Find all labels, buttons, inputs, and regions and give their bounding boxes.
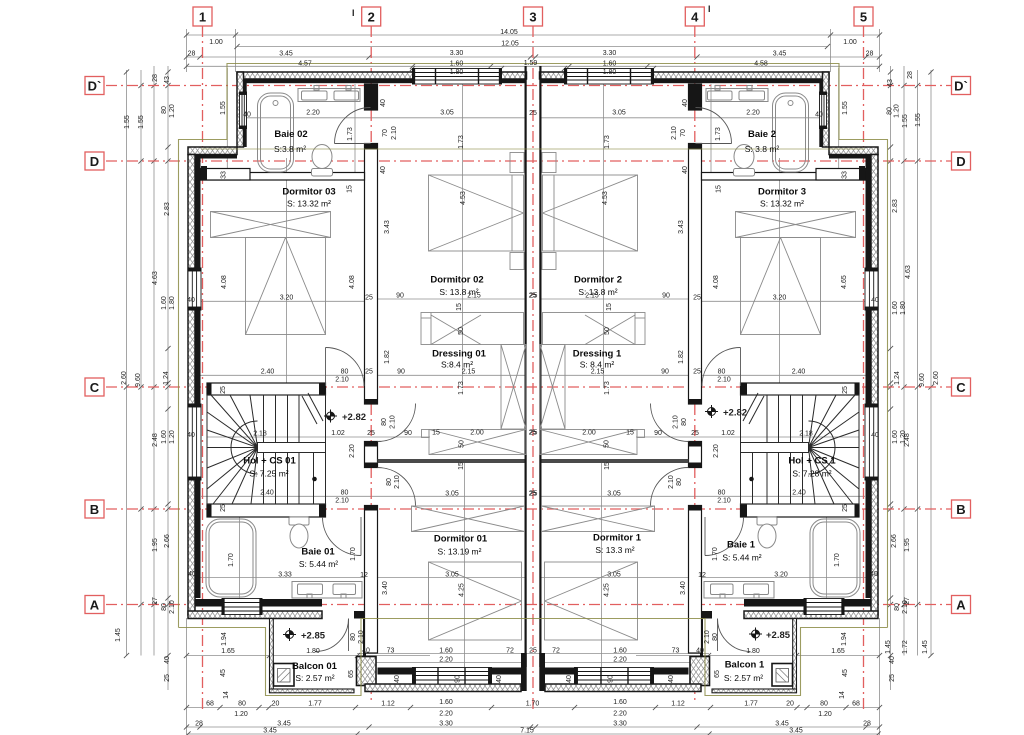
- svg-text:2.20: 2.20: [306, 110, 320, 117]
- svg-text:1.72: 1.72: [902, 640, 909, 654]
- svg-text:4.53: 4.53: [460, 191, 467, 205]
- svg-text:3.40: 3.40: [382, 581, 389, 595]
- svg-text:80: 80: [820, 701, 828, 708]
- svg-text:Baie 02: Baie 02: [274, 129, 307, 140]
- svg-text:80: 80: [718, 490, 726, 497]
- svg-text:1.60: 1.60: [161, 430, 168, 444]
- svg-text:1.70: 1.70: [350, 547, 357, 561]
- svg-text:9.60: 9.60: [919, 373, 926, 387]
- svg-text:1.45: 1.45: [885, 640, 892, 654]
- svg-text:1.24: 1.24: [894, 371, 901, 385]
- svg-text:68: 68: [852, 701, 860, 708]
- svg-text:72: 72: [506, 648, 514, 655]
- svg-text:1.73: 1.73: [604, 381, 611, 395]
- svg-text:1.60: 1.60: [613, 648, 627, 655]
- svg-text:2.15: 2.15: [467, 293, 481, 300]
- svg-text:50: 50: [458, 327, 465, 335]
- svg-text:4.25: 4.25: [459, 583, 466, 597]
- svg-text:40: 40: [871, 297, 879, 304]
- svg-text:40: 40: [188, 571, 196, 578]
- svg-text:3.20: 3.20: [774, 572, 788, 579]
- svg-text:1.12: 1.12: [671, 701, 685, 708]
- svg-text:1.94: 1.94: [841, 632, 848, 646]
- svg-text:1.80: 1.80: [746, 648, 760, 655]
- svg-text:2.10: 2.10: [717, 377, 731, 384]
- svg-text:28: 28: [907, 71, 914, 79]
- svg-text:1.80: 1.80: [450, 69, 464, 76]
- svg-text:Hol + CS 01: Hol + CS 01: [243, 456, 296, 467]
- svg-text:25: 25: [220, 504, 227, 512]
- svg-text:1.45: 1.45: [922, 640, 929, 654]
- svg-text:1.55: 1.55: [220, 101, 227, 115]
- svg-text:73: 73: [387, 648, 395, 655]
- svg-text:2.20: 2.20: [349, 444, 356, 458]
- svg-text:1.20: 1.20: [900, 430, 907, 444]
- svg-text:27: 27: [152, 597, 159, 605]
- svg-text:Dressing 01: Dressing 01: [432, 349, 487, 360]
- svg-text:Dormitor 2: Dormitor 2: [574, 275, 622, 286]
- svg-text:D: D: [90, 154, 99, 169]
- svg-text:2.10: 2.10: [394, 475, 401, 489]
- svg-text:50: 50: [459, 440, 466, 448]
- svg-text:68: 68: [206, 701, 214, 708]
- svg-text:2.40: 2.40: [792, 490, 806, 497]
- svg-text:3.45: 3.45: [263, 728, 277, 735]
- svg-text:2.10: 2.10: [668, 475, 675, 489]
- svg-text:12.05: 12.05: [501, 41, 519, 48]
- svg-text:4.08: 4.08: [713, 275, 720, 289]
- svg-text:43: 43: [887, 79, 894, 87]
- svg-text:40: 40: [696, 648, 704, 655]
- svg-text:2.20: 2.20: [439, 657, 453, 664]
- svg-text:2.20: 2.20: [713, 444, 720, 458]
- svg-text:9.60: 9.60: [135, 373, 142, 387]
- svg-text:1.60: 1.60: [613, 699, 627, 706]
- svg-text:25: 25: [529, 293, 537, 300]
- svg-text:3.05: 3.05: [445, 491, 459, 498]
- svg-text:2.20: 2.20: [439, 711, 453, 718]
- svg-text:3.43: 3.43: [678, 220, 685, 234]
- svg-text:80: 80: [341, 369, 349, 376]
- svg-text:S: 13.32 m²: S: 13.32 m²: [287, 199, 331, 209]
- svg-text:3.30: 3.30: [439, 721, 453, 728]
- svg-text:80: 80: [381, 418, 388, 426]
- svg-text:1.80: 1.80: [169, 296, 176, 310]
- svg-text:5: 5: [860, 10, 867, 25]
- svg-text:3.05: 3.05: [440, 110, 454, 117]
- svg-text:Baie 1: Baie 1: [727, 540, 756, 551]
- svg-text:4.25: 4.25: [604, 583, 611, 597]
- svg-text:80: 80: [712, 633, 719, 641]
- svg-text:2.10: 2.10: [335, 498, 349, 505]
- svg-text:80: 80: [386, 478, 393, 486]
- svg-text:12: 12: [360, 572, 368, 579]
- svg-text:2.10: 2.10: [902, 600, 909, 614]
- svg-text:1.82: 1.82: [384, 350, 391, 364]
- svg-text:90: 90: [661, 369, 669, 376]
- svg-text:4: 4: [691, 10, 699, 25]
- svg-text:1.73: 1.73: [715, 127, 722, 141]
- svg-text:40: 40: [682, 166, 689, 174]
- svg-text:1.60: 1.60: [892, 301, 899, 315]
- svg-text:40: 40: [394, 675, 401, 683]
- svg-text:15: 15: [604, 462, 611, 470]
- svg-text:1.77: 1.77: [744, 701, 758, 708]
- svg-text:Dormitor 01: Dormitor 01: [434, 534, 488, 545]
- svg-text:80: 80: [161, 106, 168, 114]
- svg-text:25: 25: [691, 430, 699, 437]
- svg-text:1.60: 1.60: [439, 699, 453, 706]
- svg-text:20: 20: [272, 701, 280, 708]
- svg-text:40: 40: [871, 432, 879, 439]
- svg-text:2.18: 2.18: [253, 431, 267, 438]
- svg-text:C: C: [956, 380, 966, 395]
- svg-text:3.45: 3.45: [279, 51, 293, 58]
- svg-text:1.55: 1.55: [124, 115, 131, 129]
- svg-text:1.80: 1.80: [306, 648, 320, 655]
- svg-text:1.60: 1.60: [439, 648, 453, 655]
- svg-text:1.60: 1.60: [603, 60, 617, 67]
- svg-text:15: 15: [626, 430, 634, 437]
- svg-text:+2.85: +2.85: [301, 631, 326, 642]
- svg-text:D`: D`: [954, 79, 968, 94]
- svg-text:15: 15: [347, 185, 354, 193]
- svg-text:25: 25: [220, 386, 227, 394]
- svg-text:25: 25: [365, 295, 373, 302]
- svg-text:1.02: 1.02: [721, 430, 735, 437]
- svg-text:+2.82: +2.82: [342, 412, 366, 423]
- svg-text:S: 5.44 m²: S: 5.44 m²: [722, 553, 761, 563]
- svg-text:1.65: 1.65: [221, 648, 235, 655]
- svg-text:80: 80: [350, 633, 357, 641]
- svg-text:S: 7.28 m²: S: 7.28 m²: [792, 469, 831, 479]
- svg-text:40: 40: [362, 648, 370, 655]
- svg-text:40: 40: [496, 675, 503, 683]
- svg-text:80: 80: [161, 603, 168, 611]
- svg-text:40: 40: [889, 656, 896, 664]
- svg-text:2.66: 2.66: [891, 534, 898, 548]
- svg-text:2.00: 2.00: [582, 430, 596, 437]
- svg-text:4.08: 4.08: [221, 275, 228, 289]
- svg-text:S: 13.32 m²: S: 13.32 m²: [760, 199, 804, 209]
- svg-text:2.10: 2.10: [169, 600, 176, 614]
- svg-text:2.10: 2.10: [671, 126, 678, 140]
- svg-text:1.95: 1.95: [152, 538, 159, 552]
- svg-text:28: 28: [188, 51, 196, 58]
- svg-text:Dormitor 1: Dormitor 1: [593, 533, 642, 544]
- svg-text:Hol + CS 1: Hol + CS 1: [788, 456, 836, 467]
- svg-text:2.20: 2.20: [746, 110, 760, 117]
- svg-text:C: C: [90, 380, 100, 395]
- svg-text:1.60: 1.60: [892, 430, 899, 444]
- svg-text:1.20: 1.20: [169, 430, 176, 444]
- svg-text:2.10: 2.10: [391, 126, 398, 140]
- svg-text:40: 40: [187, 432, 195, 439]
- svg-text:2.40: 2.40: [260, 490, 274, 497]
- svg-text:3.43: 3.43: [384, 220, 391, 234]
- svg-text:3: 3: [529, 10, 536, 25]
- svg-text:I: I: [708, 4, 711, 14]
- svg-text:70: 70: [680, 129, 687, 137]
- svg-text:4.53: 4.53: [602, 191, 609, 205]
- svg-text:A: A: [956, 598, 966, 613]
- svg-text:25: 25: [529, 430, 537, 437]
- svg-text:2.15: 2.15: [462, 369, 476, 376]
- svg-text:1.70: 1.70: [834, 553, 841, 567]
- svg-text:80: 80: [238, 701, 246, 708]
- svg-text:80: 80: [681, 418, 688, 426]
- svg-text:1.73: 1.73: [347, 127, 354, 141]
- svg-text:3.30: 3.30: [450, 50, 464, 57]
- svg-text:+2.82: +2.82: [723, 408, 747, 419]
- svg-text:1.55: 1.55: [138, 115, 145, 129]
- svg-text:1.65: 1.65: [831, 648, 845, 655]
- svg-text:2.20: 2.20: [613, 657, 627, 664]
- svg-text:3.05: 3.05: [607, 572, 621, 579]
- svg-text:Balcon 01: Balcon 01: [292, 661, 338, 672]
- svg-text:2.60: 2.60: [121, 371, 128, 385]
- svg-text:S: 13.19 m²: S: 13.19 m²: [438, 547, 482, 557]
- svg-text:2.10: 2.10: [673, 415, 680, 429]
- svg-text:1.82: 1.82: [678, 350, 685, 364]
- svg-text:1.59: 1.59: [524, 60, 538, 67]
- svg-text:2.10: 2.10: [390, 415, 397, 429]
- svg-text:3.05: 3.05: [607, 491, 621, 498]
- svg-text:1.55: 1.55: [902, 114, 909, 128]
- svg-text:1.70: 1.70: [228, 553, 235, 567]
- svg-text:25: 25: [365, 369, 373, 376]
- svg-text:2.00: 2.00: [470, 430, 484, 437]
- svg-text:2.40: 2.40: [792, 369, 806, 376]
- svg-text:1.20: 1.20: [818, 711, 832, 718]
- svg-text:15: 15: [456, 303, 463, 311]
- svg-text:25: 25: [889, 674, 896, 682]
- svg-text:1.70: 1.70: [526, 701, 540, 708]
- svg-text:4.57: 4.57: [298, 60, 312, 67]
- svg-text:2.10: 2.10: [717, 498, 731, 505]
- svg-text:1.73: 1.73: [604, 135, 611, 149]
- svg-text:S: 2.57 m²: S: 2.57 m²: [295, 673, 334, 683]
- svg-text:Baie 2: Baie 2: [748, 129, 776, 140]
- svg-text:90: 90: [662, 293, 670, 300]
- svg-text:4.63: 4.63: [152, 271, 159, 285]
- svg-text:S: 7.25 m²: S: 7.25 m²: [249, 469, 288, 479]
- svg-text:1.02: 1.02: [331, 430, 345, 437]
- svg-text:45: 45: [842, 669, 849, 677]
- svg-text:80: 80: [676, 478, 683, 486]
- svg-text:Dormitor 3: Dormitor 3: [758, 187, 806, 198]
- svg-text:1.20: 1.20: [169, 104, 176, 118]
- svg-text:S: 3.8 m²: S: 3.8 m²: [745, 144, 780, 154]
- svg-text:2.40: 2.40: [261, 369, 275, 376]
- svg-text:65: 65: [714, 670, 721, 678]
- svg-text:15: 15: [458, 462, 465, 470]
- svg-text:3.45: 3.45: [277, 721, 291, 728]
- svg-text:Dormitor 03: Dormitor 03: [282, 187, 335, 198]
- svg-text:80: 80: [341, 490, 349, 497]
- svg-text:1.70: 1.70: [712, 547, 719, 561]
- svg-text:1.77: 1.77: [308, 701, 322, 708]
- svg-text:3.05: 3.05: [445, 572, 459, 579]
- svg-text:2.20: 2.20: [613, 711, 627, 718]
- svg-text:1.00: 1.00: [209, 39, 223, 46]
- svg-text:33: 33: [842, 171, 849, 179]
- svg-text:65: 65: [348, 670, 355, 678]
- svg-text:I: I: [352, 8, 355, 18]
- svg-text:1.24: 1.24: [163, 371, 170, 385]
- svg-text:1.95: 1.95: [904, 538, 911, 552]
- svg-text:D`: D`: [88, 79, 102, 94]
- svg-text:73: 73: [672, 648, 680, 655]
- svg-text:28: 28: [152, 74, 159, 82]
- svg-text:7.15: 7.15: [520, 728, 534, 735]
- svg-text:S: 13.3 m²: S: 13.3 m²: [595, 545, 634, 555]
- svg-text:90: 90: [397, 369, 405, 376]
- svg-text:2.66: 2.66: [164, 534, 171, 548]
- svg-text:1.60: 1.60: [450, 60, 464, 67]
- svg-text:A: A: [90, 598, 100, 613]
- svg-text:2.60: 2.60: [933, 371, 940, 385]
- svg-text:3.20: 3.20: [280, 295, 294, 302]
- svg-text:80: 80: [718, 369, 726, 376]
- svg-text:3.40: 3.40: [680, 581, 687, 595]
- svg-text:15: 15: [432, 430, 440, 437]
- svg-text:4.08: 4.08: [349, 275, 356, 289]
- svg-text:40: 40: [380, 99, 387, 107]
- svg-text:S:3.8 m²: S:3.8 m²: [274, 144, 306, 154]
- svg-text:1.73: 1.73: [458, 381, 465, 395]
- svg-text:33: 33: [221, 171, 228, 179]
- svg-text:2.18: 2.18: [799, 431, 813, 438]
- svg-text:20: 20: [786, 701, 794, 708]
- svg-text:1.20: 1.20: [894, 104, 901, 118]
- svg-text:1.80: 1.80: [900, 301, 907, 315]
- svg-text:2: 2: [368, 10, 375, 25]
- svg-text:2.10: 2.10: [335, 377, 349, 384]
- svg-text:3.30: 3.30: [613, 721, 627, 728]
- svg-text:3.45: 3.45: [789, 728, 803, 735]
- svg-text:25: 25: [164, 674, 171, 682]
- svg-text:1.55: 1.55: [915, 113, 922, 127]
- svg-text:1.73: 1.73: [458, 135, 465, 149]
- svg-text:1.60: 1.60: [161, 296, 168, 310]
- svg-text:90: 90: [455, 675, 462, 683]
- svg-text:28: 28: [195, 721, 203, 728]
- svg-text:D: D: [956, 154, 965, 169]
- svg-text:1.12: 1.12: [381, 701, 395, 708]
- svg-text:25: 25: [693, 369, 701, 376]
- svg-text:40: 40: [187, 297, 195, 304]
- svg-text:1.00: 1.00: [843, 39, 857, 46]
- svg-text:14: 14: [223, 691, 230, 699]
- svg-text:90: 90: [608, 675, 615, 683]
- svg-text:3.33: 3.33: [278, 572, 292, 579]
- svg-text:28: 28: [863, 721, 871, 728]
- svg-text:12: 12: [698, 572, 706, 579]
- svg-text:25: 25: [693, 295, 701, 302]
- svg-text:90: 90: [396, 293, 404, 300]
- svg-text:1.94: 1.94: [221, 632, 228, 646]
- svg-text:B: B: [90, 502, 99, 517]
- svg-text:14: 14: [839, 691, 846, 699]
- svg-text:70: 70: [382, 129, 389, 137]
- svg-text:S: 5.44 m²: S: 5.44 m²: [299, 559, 338, 569]
- svg-text:2.10: 2.10: [358, 630, 365, 644]
- svg-text:3.20: 3.20: [773, 295, 787, 302]
- svg-text:40: 40: [380, 166, 387, 174]
- svg-text:15: 15: [716, 185, 723, 193]
- svg-text:3.45: 3.45: [775, 721, 789, 728]
- svg-text:15: 15: [606, 303, 613, 311]
- svg-text:14.05: 14.05: [500, 29, 518, 36]
- svg-text:80: 80: [894, 603, 901, 611]
- svg-text:+2.85: +2.85: [766, 630, 791, 641]
- svg-text:72: 72: [552, 648, 560, 655]
- svg-text:4.58: 4.58: [754, 60, 768, 67]
- svg-text:Dressing 1: Dressing 1: [573, 349, 622, 360]
- svg-text:S: 2.57 m²: S: 2.57 m²: [724, 673, 763, 683]
- svg-text:2.83: 2.83: [892, 199, 899, 213]
- svg-text:2.15: 2.15: [591, 369, 605, 376]
- svg-text:25: 25: [529, 110, 537, 117]
- svg-text:40: 40: [870, 571, 878, 578]
- svg-text:40: 40: [815, 112, 823, 119]
- svg-text:3.30: 3.30: [603, 50, 617, 57]
- svg-text:40: 40: [668, 675, 675, 683]
- svg-text:1.80: 1.80: [603, 69, 617, 76]
- svg-text:40: 40: [164, 656, 171, 664]
- svg-text:B: B: [956, 502, 965, 517]
- svg-text:90: 90: [654, 430, 662, 437]
- svg-text:45: 45: [220, 669, 227, 677]
- svg-text:25: 25: [529, 648, 537, 655]
- svg-text:2.48: 2.48: [152, 433, 159, 447]
- svg-text:2.10: 2.10: [704, 630, 711, 644]
- svg-text:50: 50: [604, 440, 611, 448]
- svg-text:40: 40: [243, 112, 251, 119]
- svg-text:4.63: 4.63: [905, 265, 912, 279]
- svg-text:25: 25: [842, 504, 849, 512]
- svg-text:40: 40: [566, 675, 573, 683]
- svg-text:25: 25: [367, 430, 375, 437]
- svg-text:90: 90: [404, 430, 412, 437]
- svg-text:1.20: 1.20: [234, 711, 248, 718]
- svg-text:40: 40: [682, 99, 689, 107]
- svg-text:1: 1: [199, 10, 206, 25]
- svg-text:1.45: 1.45: [115, 628, 122, 642]
- svg-text:25: 25: [842, 386, 849, 394]
- svg-text:Dormitor 02: Dormitor 02: [430, 275, 483, 286]
- svg-text:4.65: 4.65: [841, 275, 848, 289]
- svg-text:43: 43: [164, 76, 171, 84]
- svg-text:3.45: 3.45: [773, 51, 787, 58]
- svg-text:28: 28: [866, 51, 874, 58]
- svg-text:Baie 01: Baie 01: [301, 547, 335, 558]
- svg-text:2.15: 2.15: [585, 293, 599, 300]
- svg-text:3.05: 3.05: [612, 110, 626, 117]
- svg-text:25: 25: [529, 491, 537, 498]
- svg-text:50: 50: [604, 327, 611, 335]
- svg-text:1.55: 1.55: [842, 101, 849, 115]
- svg-text:Balcon 1: Balcon 1: [725, 660, 765, 671]
- svg-text:80: 80: [887, 107, 894, 115]
- svg-text:2.83: 2.83: [164, 202, 171, 216]
